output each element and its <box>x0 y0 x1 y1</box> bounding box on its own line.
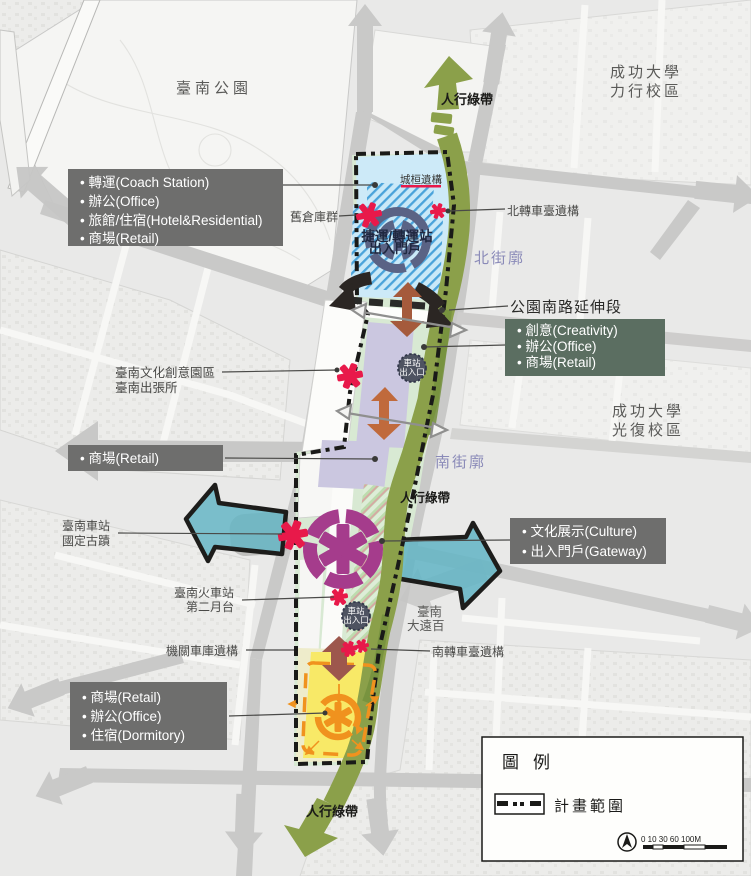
svg-text:• 文化展示(Culture): • 文化展示(Culture) <box>522 524 637 539</box>
svg-text:南街廓: 南街廓 <box>435 454 486 471</box>
svg-text:出入門戶: 出入門戶 <box>369 241 421 256</box>
svg-text:臺南火車站: 臺南火車站 <box>174 585 234 600</box>
svg-text:南轉車臺遺構: 南轉車臺遺構 <box>432 644 504 659</box>
svg-text:人行綠帶: 人行綠帶 <box>400 490 451 505</box>
svg-text:• 商場(Retail): • 商場(Retail) <box>80 231 159 246</box>
svg-text:臺南車站: 臺南車站 <box>62 518 110 533</box>
svg-text:舊倉庫群: 舊倉庫群 <box>290 209 338 224</box>
svg-text:0 10 30 60 100M: 0 10 30 60 100M <box>641 835 701 844</box>
svg-text:出入口: 出入口 <box>399 367 425 377</box>
svg-text:臺南文化創意園區: 臺南文化創意園區 <box>115 365 215 380</box>
svg-text:• 轉運(Coach Station): • 轉運(Coach Station) <box>80 175 209 190</box>
svg-text:成功大學: 成功大學 <box>610 63 682 81</box>
svg-text:成功大學: 成功大學 <box>612 402 684 420</box>
svg-text:公園南路延伸段: 公園南路延伸段 <box>510 299 622 316</box>
svg-text:人行綠帶: 人行綠帶 <box>306 804 358 819</box>
svg-text:• 商場(Retail): • 商場(Retail) <box>82 690 161 705</box>
svg-text:第二月台: 第二月台 <box>186 599 234 614</box>
svg-text:人行綠帶: 人行綠帶 <box>441 92 493 107</box>
svg-text:臺南出張所: 臺南出張所 <box>115 380 178 395</box>
svg-text:• 辦公(Office): • 辦公(Office) <box>80 194 159 209</box>
svg-text:光復校區: 光復校區 <box>612 422 684 439</box>
svg-text:計畫範圍: 計畫範圍 <box>554 797 626 815</box>
svg-text:圖例: 圖例 <box>502 753 564 772</box>
svg-text:臺南公園: 臺南公園 <box>176 80 252 97</box>
svg-text:力行校區: 力行校區 <box>610 83 682 100</box>
svg-text:• 創意(Creativity): • 創意(Creativity) <box>517 322 618 338</box>
svg-text:大遠百: 大遠百 <box>407 619 445 633</box>
svg-text:國定古蹟: 國定古蹟 <box>62 533 110 548</box>
svg-text:• 商場(Retail): • 商場(Retail) <box>517 355 596 370</box>
svg-text:城桓遺構: 城桓遺構 <box>400 173 442 186</box>
svg-text:機關車庫遺構: 機關車庫遺構 <box>166 643 238 658</box>
svg-text:• 旅館/住宿(Hotel&Residential): • 旅館/住宿(Hotel&Residential) <box>80 212 263 228</box>
svg-text:• 辦公(Office): • 辦公(Office) <box>517 339 596 354</box>
svg-text:臺南: 臺南 <box>417 604 442 619</box>
svg-text:• 出入門戶(Gateway): • 出入門戶(Gateway) <box>522 544 647 559</box>
svg-text:• 商場(Retail): • 商場(Retail) <box>80 451 159 466</box>
svg-text:• 辦公(Office): • 辦公(Office) <box>82 709 161 724</box>
svg-text:• 住宿(Dormitory): • 住宿(Dormitory) <box>82 727 185 743</box>
svg-text:北街廓: 北街廓 <box>474 250 525 267</box>
svg-text:出入口: 出入口 <box>343 615 369 625</box>
svg-text:北轉車臺遺構: 北轉車臺遺構 <box>507 203 579 218</box>
